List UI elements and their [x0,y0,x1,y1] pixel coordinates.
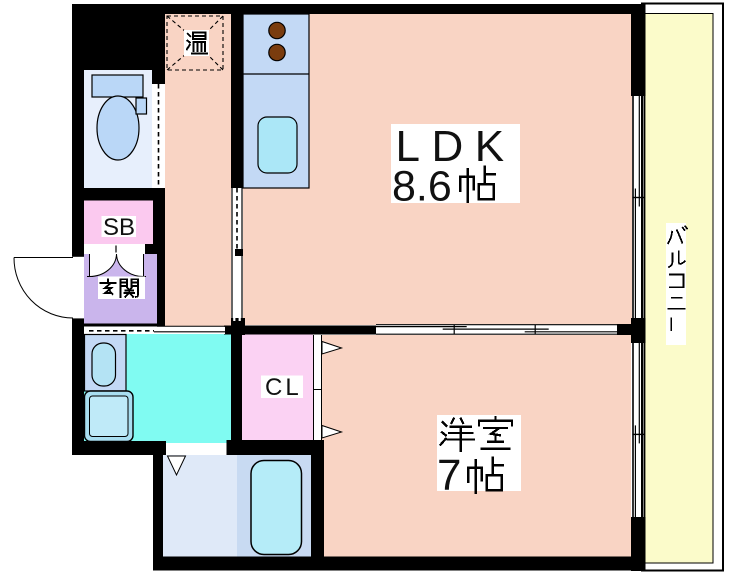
svg-text:8.6: 8.6 [392,163,452,211]
svg-text:CL: CL [265,374,302,401]
svg-text:SB: SB [103,214,135,241]
svg-text:7: 7 [437,451,461,500]
